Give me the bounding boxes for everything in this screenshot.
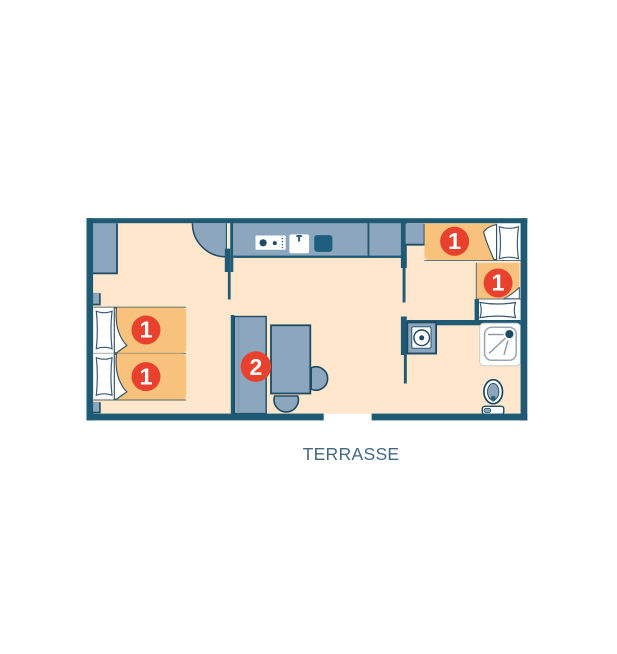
- svg-text:1: 1: [139, 317, 152, 343]
- svg-text:1: 1: [448, 228, 461, 254]
- svg-text:1: 1: [139, 363, 152, 389]
- svg-text:TERRASSE: TERRASSE: [303, 444, 400, 464]
- svg-text:1: 1: [492, 270, 505, 296]
- svg-text:2: 2: [250, 354, 263, 380]
